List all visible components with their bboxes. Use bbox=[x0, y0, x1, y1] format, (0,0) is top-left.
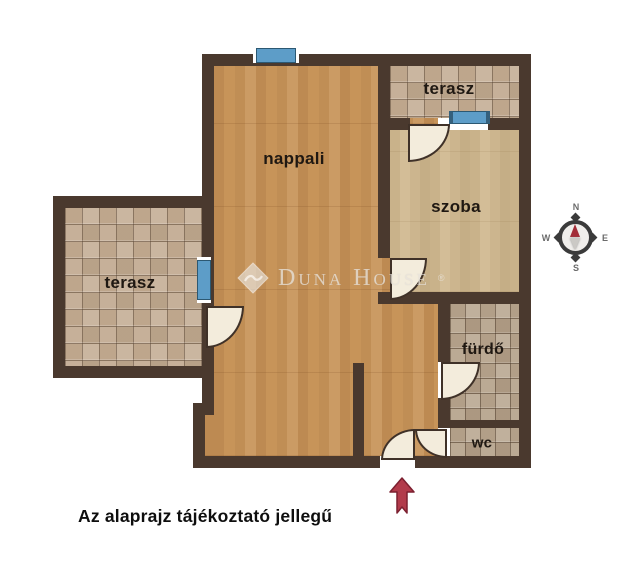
wall-terrace-top bbox=[53, 196, 214, 208]
compass-letter-e: E bbox=[602, 233, 608, 243]
wall-right bbox=[519, 54, 531, 468]
room-label-terasz-left: terasz bbox=[105, 273, 156, 293]
wall-terrace-bottom bbox=[53, 366, 214, 378]
compass-needle-north-icon bbox=[570, 224, 580, 237]
compass-letter-w: W bbox=[542, 233, 551, 243]
room-label-wc: wc bbox=[472, 435, 493, 452]
wall-notch-step bbox=[193, 403, 214, 415]
wall-terrace-left bbox=[53, 196, 65, 378]
wall-hall-stub bbox=[353, 363, 364, 456]
compass-needle-south-icon bbox=[570, 238, 580, 250]
entrance-arrow-icon bbox=[389, 477, 415, 515]
room-label-nappali: nappali bbox=[263, 149, 325, 169]
window-terrace-left-icon bbox=[197, 260, 211, 300]
room-label-terasz-top: terasz bbox=[424, 79, 475, 99]
window-nappali-top-icon bbox=[256, 48, 296, 63]
wall-top bbox=[202, 54, 531, 66]
wall-nappali-szoba-divider bbox=[378, 54, 390, 258]
wall-furdo-wc-divider bbox=[438, 420, 519, 428]
disclaimer-text: Az alaprajz tájékoztató jellegű bbox=[78, 506, 332, 527]
wall-terasz-szoba-a bbox=[378, 118, 410, 130]
nappali-floor-notch bbox=[205, 415, 214, 456]
compass-letter-n: N bbox=[573, 202, 580, 212]
wall-furdo-left-upper bbox=[438, 304, 450, 362]
room-label-szoba: szoba bbox=[431, 197, 481, 217]
compass-letter-s: S bbox=[573, 263, 579, 273]
wall-nappali-left bbox=[202, 54, 214, 415]
room-label-furdo: fürdő bbox=[462, 341, 504, 359]
window-szoba-terasz-icon bbox=[449, 111, 490, 124]
floorplan-image: Duna House® nappali terasz terasz szoba … bbox=[0, 0, 640, 563]
wall-bottom-left bbox=[193, 456, 380, 468]
wall-bottom-right bbox=[415, 456, 531, 468]
wall-terasz-szoba-b bbox=[488, 118, 519, 130]
wall-furdo-left-lower bbox=[438, 398, 450, 422]
